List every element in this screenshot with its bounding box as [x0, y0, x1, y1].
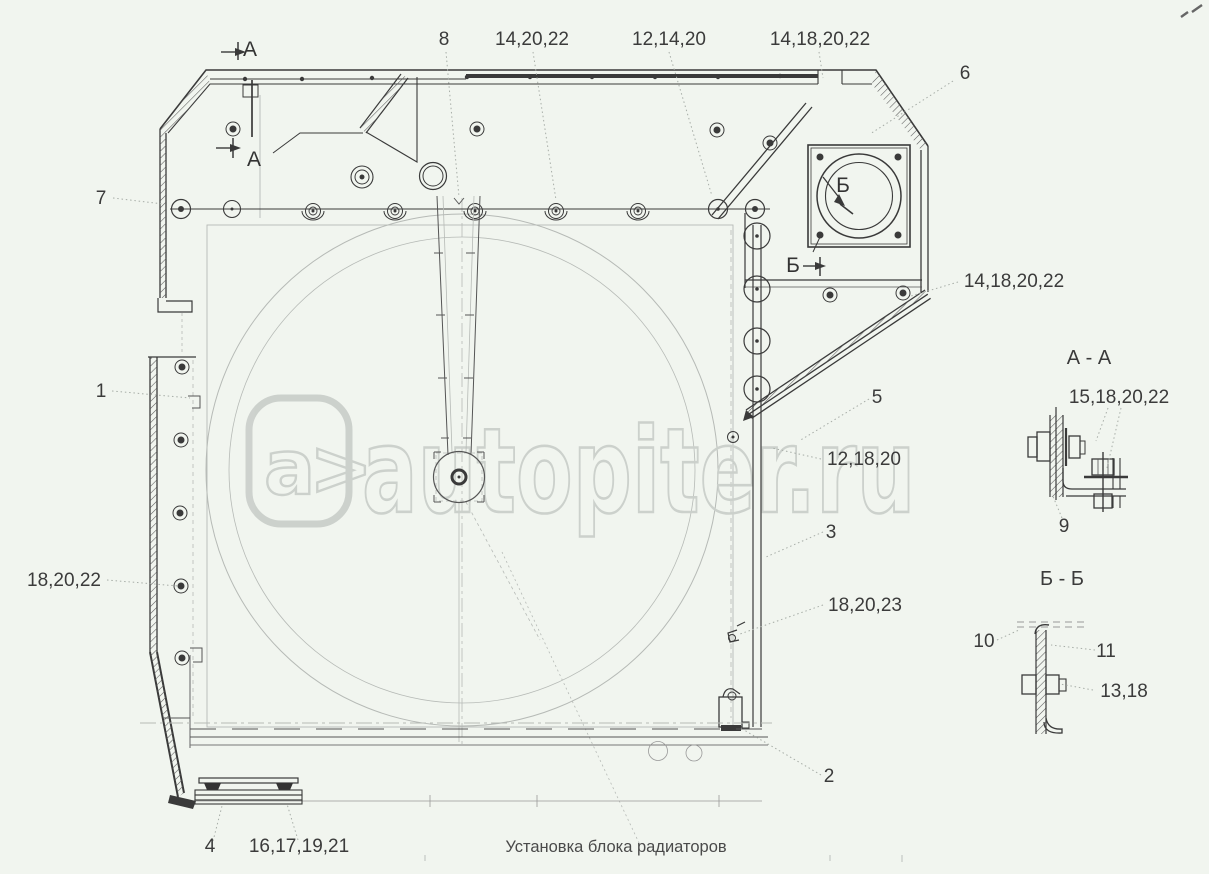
callout-4: 4 — [205, 836, 216, 857]
callout-18-20-22: 18,20,22 — [27, 570, 101, 591]
callout-1: 1 — [96, 381, 107, 402]
callout-14-18-20-22-right: 14,18,20,22 — [964, 271, 1064, 292]
radiator-assembly-drawing: a> autopiter.ru — [0, 0, 1209, 874]
marker-b-bottom-label: Б — [786, 254, 800, 277]
callout-11: 11 — [1096, 641, 1116, 662]
marker-b-flange-label: Б — [836, 174, 850, 197]
callout-12-14-20: 12,14,20 — [632, 29, 706, 50]
callout-16-17-19-21: 16,17,19,21 — [249, 836, 349, 857]
callout-10: 10 — [973, 631, 994, 652]
callout-5: 5 — [872, 387, 883, 408]
watermark-site: autopiter.ru — [362, 403, 915, 541]
watermark-logo: a> — [264, 423, 367, 512]
callout-12-18-20: 12,18,20 — [827, 449, 901, 470]
callout-18-20-23: 18,20,23 — [828, 595, 902, 616]
callout-13-18: 13,18 — [1100, 681, 1148, 702]
section-aa-title: А - А — [1067, 347, 1112, 369]
section-bb-title: Б - Б — [1040, 568, 1084, 590]
callout-3: 3 — [826, 522, 837, 543]
marker-a-top-label: А — [243, 38, 257, 61]
callout-7: 7 — [96, 188, 107, 209]
callout-14-20-22: 14,20,22 — [495, 29, 569, 50]
drawing-caption: Установка блока радиаторов — [505, 838, 727, 856]
callout-2: 2 — [824, 766, 835, 787]
callout-14-18-20-22-top: 14,18,20,22 — [770, 29, 870, 50]
marker-a-bottom-label: А — [247, 148, 261, 171]
callout-15-18-20-22: 15,18,20,22 — [1069, 387, 1169, 408]
callout-8: 8 — [439, 29, 450, 50]
callout-6: 6 — [960, 63, 971, 84]
callout-9: 9 — [1059, 516, 1070, 537]
